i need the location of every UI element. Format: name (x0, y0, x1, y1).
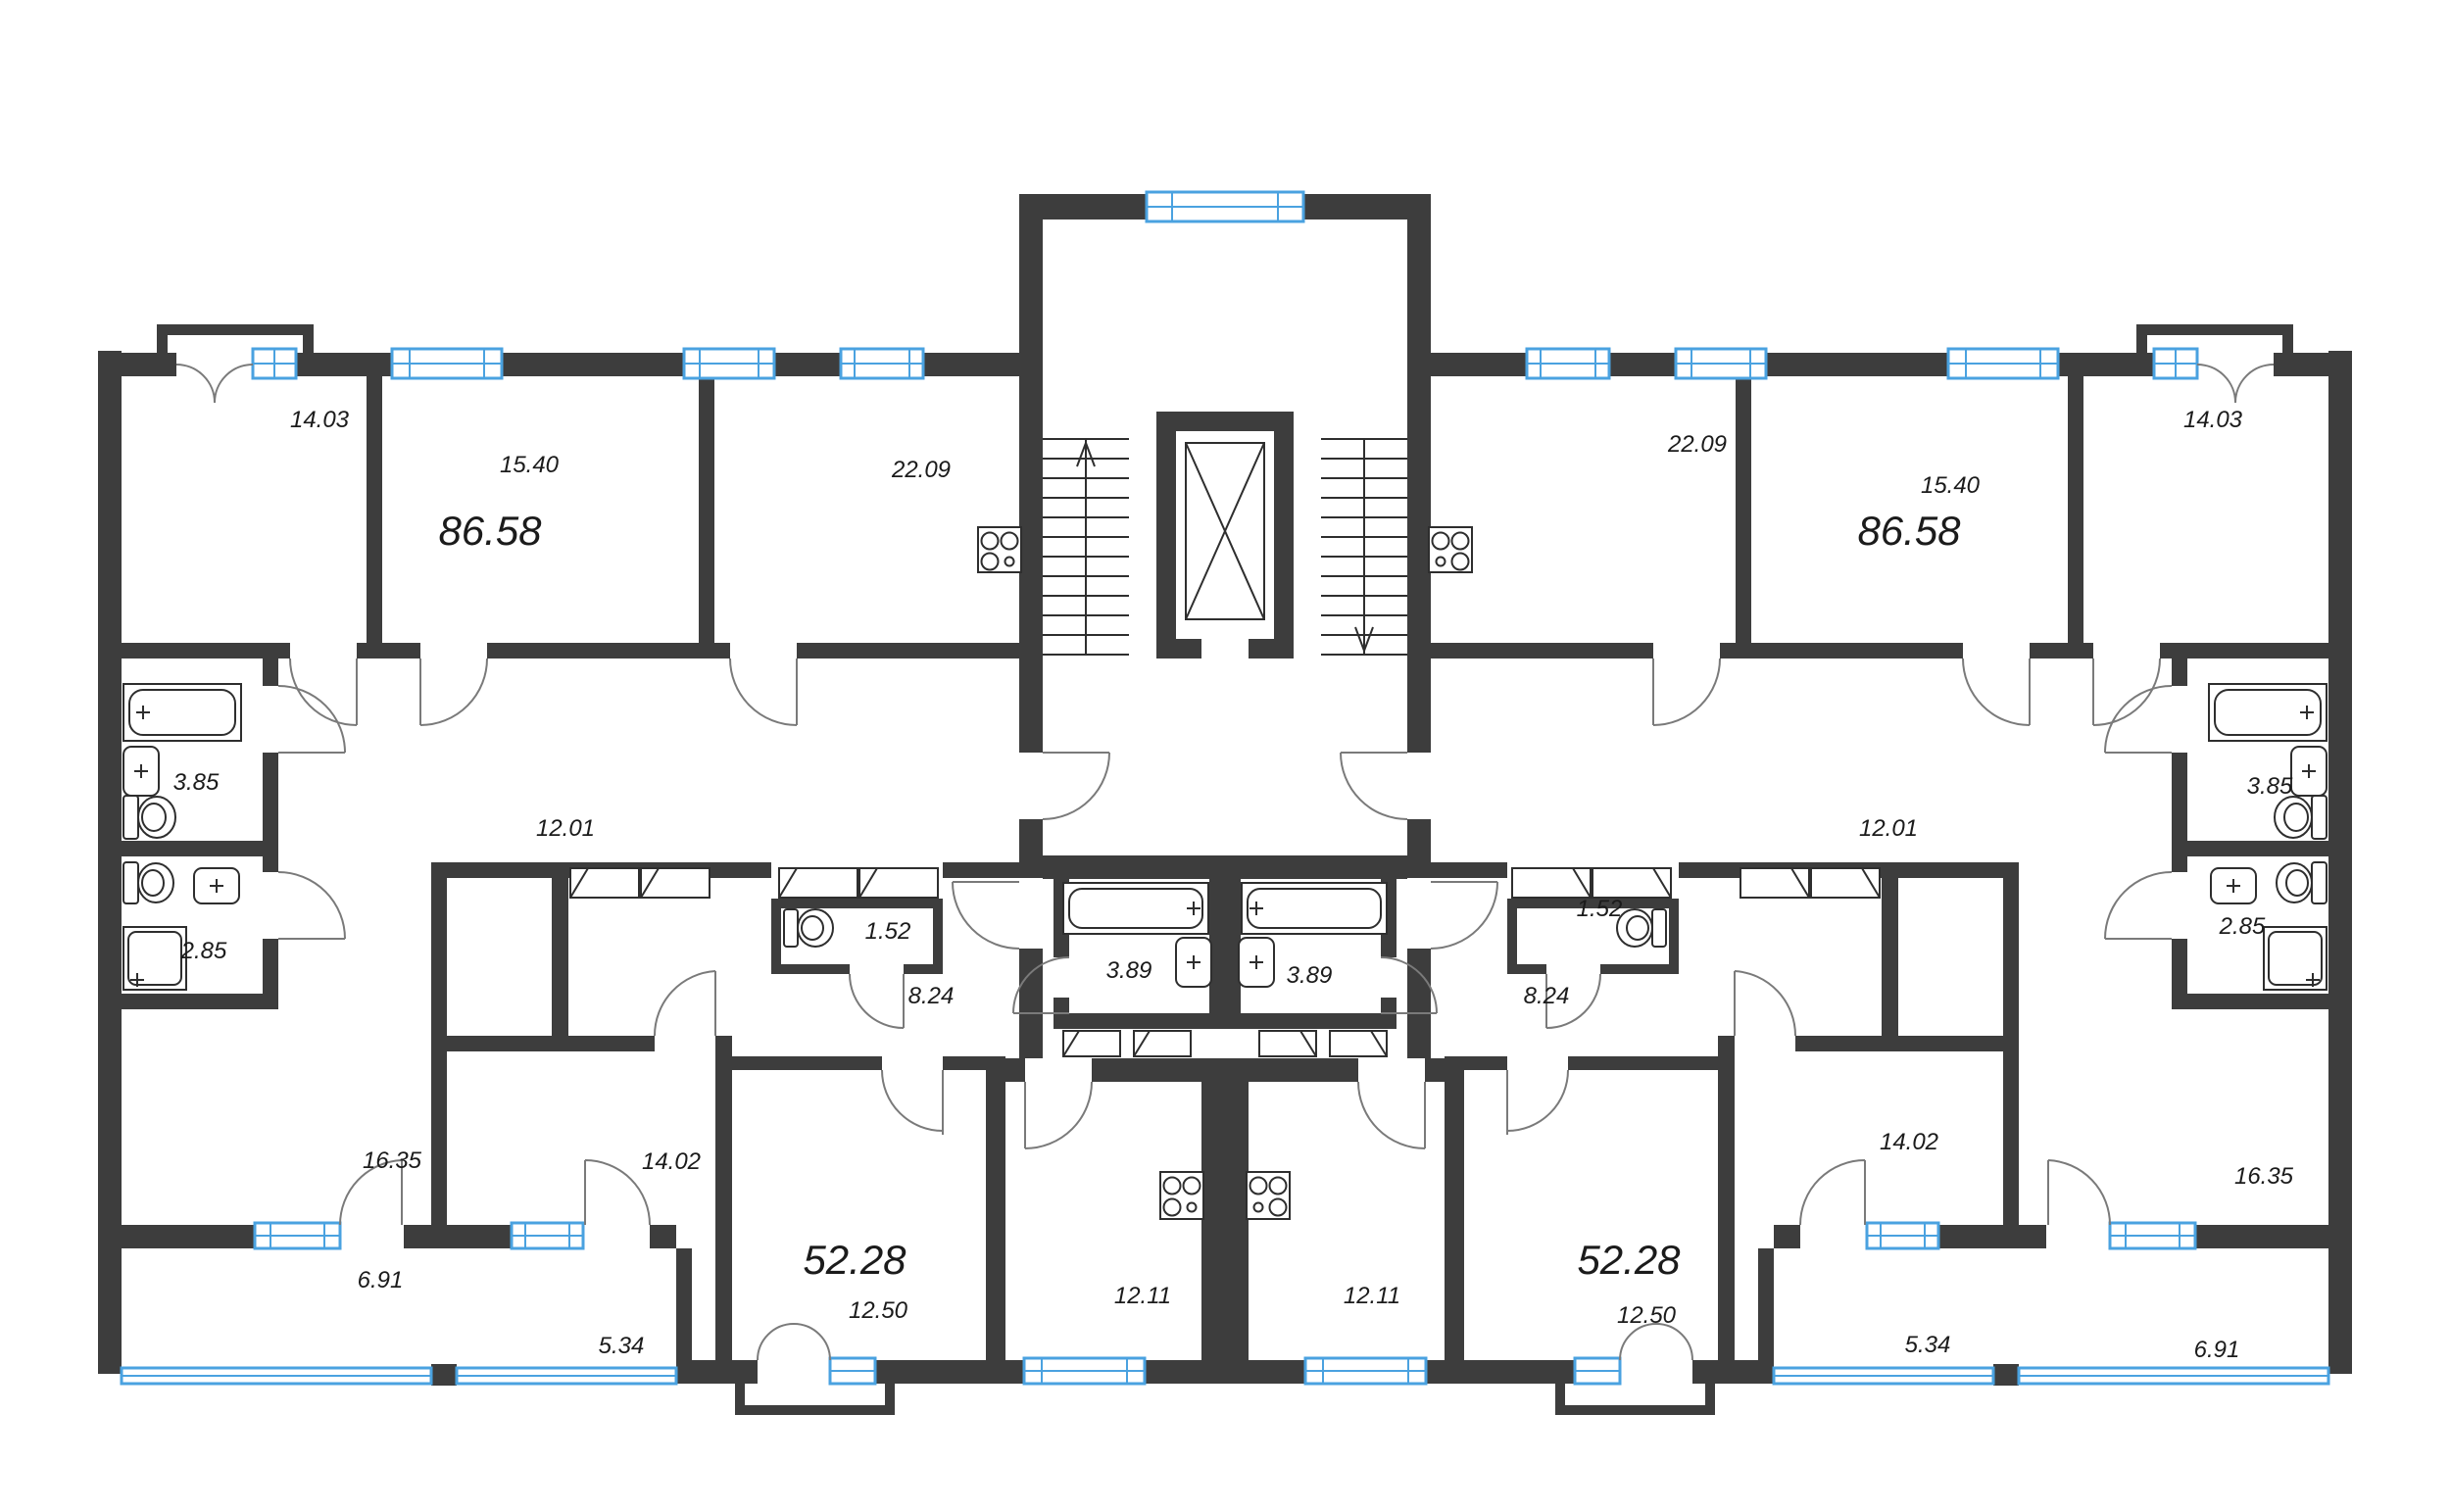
room-area-label: 12.11 (1344, 1283, 1400, 1309)
room-area-label: 1.52 (1577, 896, 1623, 922)
room-area-label: 14.02 (642, 1148, 701, 1175)
room-area-label: 22.09 (1667, 431, 1727, 458)
room-area-label: 6.91 (358, 1267, 404, 1293)
room-area-label: 15.40 (500, 452, 560, 478)
elevator-icon (1156, 412, 1294, 658)
room-area-label: 3.89 (1287, 962, 1333, 989)
room-area-label: 3.85 (2247, 773, 2293, 800)
room-area-label: 5.34 (1905, 1332, 1951, 1358)
room-area-label: 12.50 (849, 1297, 908, 1324)
room-area-label: 52.28 (803, 1237, 906, 1283)
room-area-label: 86.58 (1857, 508, 1961, 554)
room-area-label: 52.28 (1577, 1237, 1681, 1283)
room-area-label: 14.03 (290, 407, 350, 433)
room-area-label: 12.01 (536, 815, 595, 842)
room-area-label: 12.11 (1114, 1283, 1171, 1309)
left-wing (98, 194, 1225, 1415)
room-area-label: 86.58 (438, 508, 542, 554)
right-wing (1225, 194, 2352, 1415)
room-area-label: 16.35 (363, 1147, 422, 1174)
room-area-label: 14.03 (2183, 407, 2243, 433)
room-area-label: 5.34 (599, 1333, 645, 1359)
room-area-label: 14.02 (1880, 1129, 1938, 1155)
room-area-label: 12.50 (1617, 1302, 1677, 1329)
stairs-down-icon (1321, 439, 1407, 655)
room-area-label: 6.91 (2194, 1337, 2240, 1363)
room-area-label: 8.24 (1524, 983, 1570, 1009)
floor-plan: 14.0315.4086.5822.093.8512.012.851.528.2… (0, 0, 2450, 1512)
room-area-label: 16.35 (2234, 1163, 2294, 1190)
room-area-label: 12.01 (1859, 815, 1918, 842)
stair-core (1043, 192, 1407, 658)
floor-plan-page: 14.0315.4086.5822.093.8512.012.851.528.2… (0, 0, 2450, 1512)
room-area-label: 15.40 (1921, 472, 1981, 499)
room-area-label: 3.89 (1106, 957, 1152, 984)
room-area-label: 22.09 (891, 457, 951, 483)
window-icon (1147, 192, 1303, 221)
stairs-up-icon (1043, 439, 1129, 655)
room-area-label: 2.85 (180, 938, 227, 964)
room-area-label: 8.24 (908, 983, 955, 1009)
room-area-label: 2.85 (2219, 913, 2266, 940)
room-area-label: 3.85 (173, 769, 220, 796)
room-area-label: 1.52 (865, 918, 911, 945)
